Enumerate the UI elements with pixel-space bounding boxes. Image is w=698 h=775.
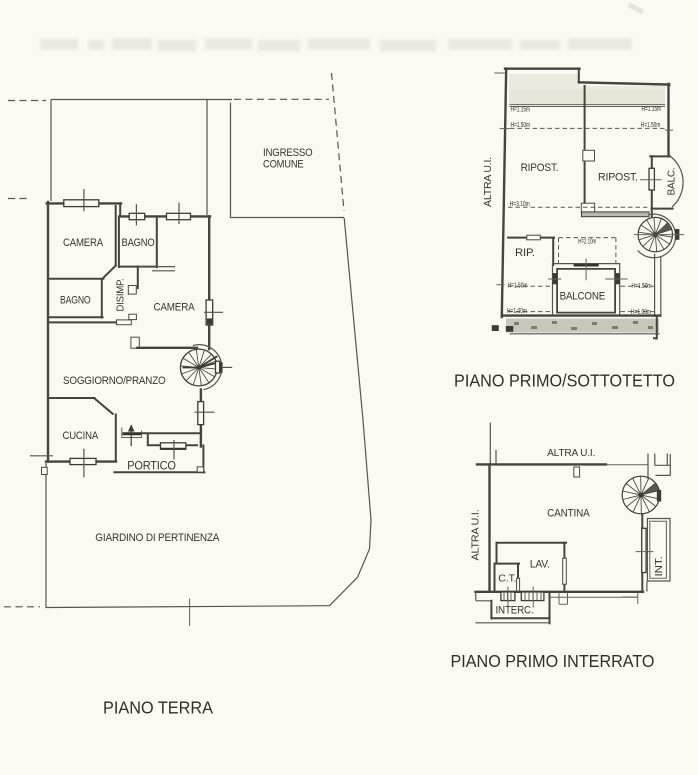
svg-text:INGRESSO: INGRESSO — [263, 147, 313, 159]
svg-text:BAGNO: BAGNO — [122, 237, 156, 249]
svg-text:H=1.15m: H=1.15m — [511, 106, 531, 113]
svg-text:BALC.: BALC. — [666, 168, 678, 196]
svg-text:COMUNE: COMUNE — [263, 159, 304, 171]
svg-text:H=3.10m: H=3.10m — [510, 201, 530, 208]
svg-text:CUCINA: CUCINA — [63, 430, 99, 442]
svg-text:RIP.: RIP. — [515, 247, 535, 259]
svg-text:GIARDINO DI PERTINENZA: GIARDINO DI PERTINENZA — [95, 532, 220, 544]
svg-text:H=2.10m: H=2.10m — [578, 238, 596, 245]
svg-text:ALTRA U.I.: ALTRA U.I. — [470, 510, 482, 561]
svg-text:BAGNO: BAGNO — [60, 294, 91, 306]
svg-text:C.T.: C.T. — [498, 572, 516, 584]
svg-text:RIPOST.: RIPOST. — [598, 171, 638, 183]
svg-text:H=1.50m: H=1.50m — [511, 122, 531, 129]
svg-text:PIANO PRIMO INTERRATO: PIANO PRIMO INTERRATO — [451, 651, 655, 671]
svg-text:LAV.: LAV. — [530, 558, 550, 570]
svg-text:H=1.15m: H=1.15m — [642, 106, 662, 113]
svg-text:RIPOST.: RIPOST. — [521, 162, 559, 174]
svg-text:PORTICO: PORTICO — [127, 458, 176, 472]
svg-text:H=1.50m: H=1.50m — [641, 122, 661, 129]
svg-text:SOGGIORNO/PRANZO: SOGGIORNO/PRANZO — [63, 375, 166, 387]
svg-text:ALTRA U.I.: ALTRA U.I. — [547, 447, 595, 459]
svg-text:H=1.00m: H=1.00m — [507, 308, 527, 315]
svg-text:BALCONE: BALCONE — [560, 291, 606, 303]
svg-text:H=1.50m: H=1.50m — [508, 282, 528, 289]
svg-text:PIANO PRIMO/SOTTOTETTO: PIANO PRIMO/SOTTOTETTO — [454, 370, 675, 390]
svg-text:CAMERA: CAMERA — [63, 237, 104, 249]
svg-text:INT.: INT. — [653, 557, 665, 577]
svg-text:DISIMP.: DISIMP. — [115, 279, 127, 312]
svg-text:H=1.50m: H=1.50m — [632, 283, 652, 290]
svg-text:INTERC.: INTERC. — [496, 605, 534, 617]
svg-text:CAMERA: CAMERA — [154, 302, 196, 314]
svg-text:ALTRA U.I.: ALTRA U.I. — [482, 157, 494, 207]
svg-text:CANTINA: CANTINA — [547, 508, 590, 520]
svg-text:PIANO TERRA: PIANO TERRA — [103, 698, 213, 718]
